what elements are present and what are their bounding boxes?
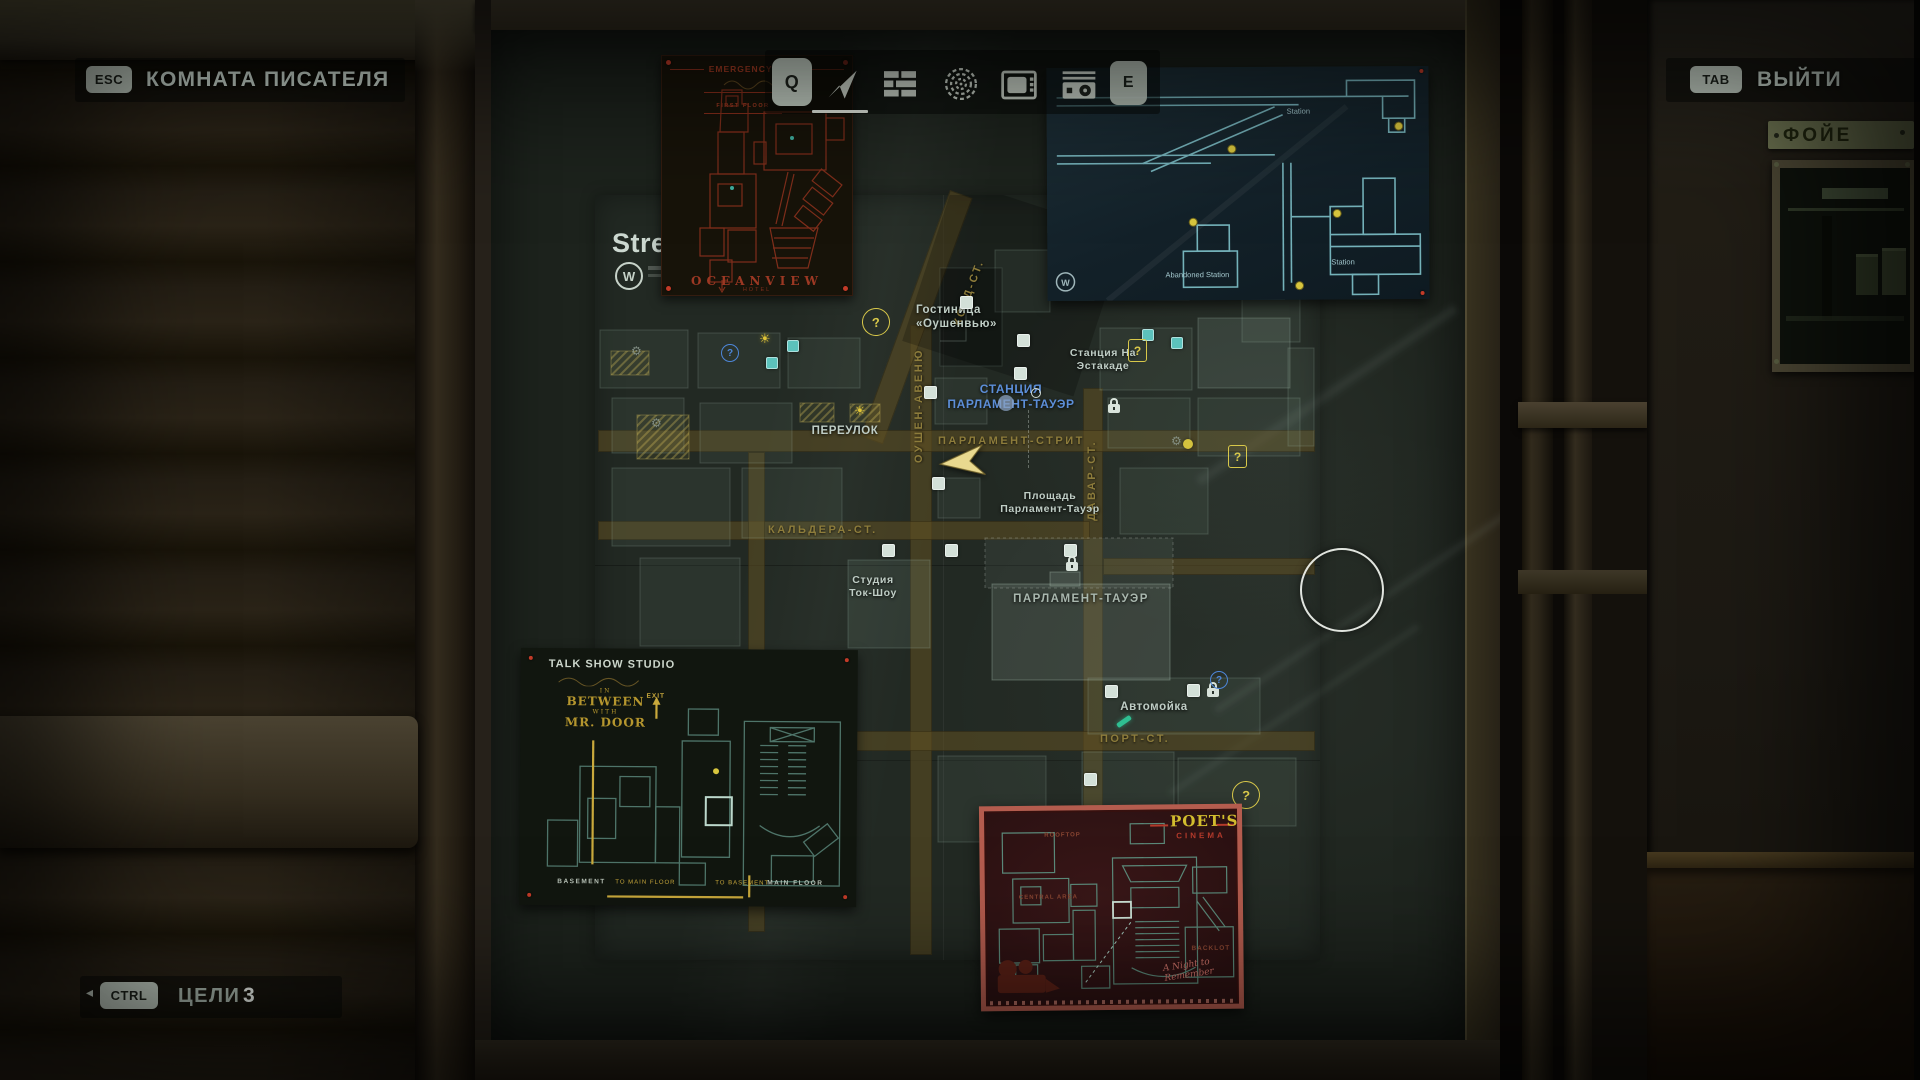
map-board-frame-top xyxy=(475,0,1507,30)
esc-key-badge[interactable]: ESC xyxy=(86,66,132,93)
door-gap xyxy=(1500,0,1522,1080)
door-marker[interactable] xyxy=(945,544,958,557)
lock-icon[interactable] xyxy=(1207,688,1219,697)
street-label-ocean: ОУШЕН-АВЕНЮ xyxy=(913,348,925,463)
subway-station-label: Station xyxy=(1331,257,1354,266)
door-rail xyxy=(1518,402,1648,428)
photo-pillar xyxy=(1822,216,1832,320)
wood-wall-top-beam xyxy=(0,0,440,60)
photo-poster xyxy=(1882,248,1906,295)
screen-right-edge xyxy=(1914,0,1920,1080)
cyan-marker[interactable] xyxy=(766,357,778,369)
screw-icon xyxy=(1774,162,1779,167)
wood-post-left xyxy=(415,0,477,1080)
dashed-path xyxy=(1028,410,1030,468)
lock-icon[interactable] xyxy=(1066,562,1078,571)
photo-frame xyxy=(1772,160,1918,372)
wood-wall-left xyxy=(0,0,475,1080)
exit-label[interactable]: ВЫЙТИ xyxy=(1757,68,1842,92)
foyer-sign-plate: ФОЙЕ xyxy=(1768,121,1914,149)
photo-marquee xyxy=(1822,188,1888,199)
gear-icon: ⚙ xyxy=(1171,435,1182,447)
toolbar-next-key-badge[interactable]: E xyxy=(1110,61,1147,105)
photo-floor xyxy=(1786,316,1904,321)
cyan-marker[interactable] xyxy=(787,340,799,352)
door-marker[interactable] xyxy=(960,296,973,309)
subway-logo: W xyxy=(1061,278,1070,288)
screw-icon xyxy=(1905,162,1910,167)
oceanview-name-sub: HOTEL xyxy=(662,287,852,293)
door-marker[interactable] xyxy=(1187,684,1200,697)
talkshow-floor-main: MAIN FLOOR xyxy=(767,880,823,887)
grid-icon[interactable] xyxy=(882,68,918,100)
street-label-caldera: КАЛЬДЕРА-СТ. xyxy=(768,524,878,536)
talkshow-floor-tomain: TO MAIN FLOOR xyxy=(615,879,675,885)
place-label-talk-show-studio: Студия Ток-Шоу xyxy=(836,574,910,600)
place-label-alley: ПЕРЕУЛОК xyxy=(795,424,895,438)
game-screen: Stre W xyxy=(0,0,1920,1080)
screw-icon xyxy=(1774,359,1779,364)
yellow-dot-marker[interactable] xyxy=(1183,439,1193,449)
poets-subtitle: CINEMA xyxy=(1176,831,1226,841)
break-room-icon[interactable]: ☀ xyxy=(759,332,771,345)
cursor-ring xyxy=(1300,548,1384,632)
question-marker-box[interactable]: ? xyxy=(1128,339,1147,362)
toolbar-prev-key-badge[interactable]: Q xyxy=(772,58,812,106)
door-marker[interactable] xyxy=(1014,367,1027,380)
objectives-count: 3 xyxy=(243,984,255,1008)
place-label-tower-square: Площадь Парламент-Тауэр xyxy=(975,490,1125,516)
spiral-icon[interactable] xyxy=(943,66,979,102)
door-rail xyxy=(1518,570,1648,594)
talkshow-floor-basement: BASEMENT xyxy=(557,878,606,885)
wood-post-left-cap xyxy=(415,0,477,72)
sideboard-body xyxy=(1647,868,1920,1080)
cyan-marker[interactable] xyxy=(1171,337,1183,349)
poets-label-rooftop: ROOFTOP xyxy=(1044,832,1081,838)
lock-icon[interactable] xyxy=(1108,404,1120,413)
question-marker-box[interactable]: ? xyxy=(1228,445,1247,468)
place-label-parliament-tower: ПАРЛАМЕНТ-ТАУЭР xyxy=(992,592,1170,606)
photo-canopy xyxy=(1788,208,1904,211)
door-post xyxy=(1564,0,1592,1080)
subway-station-label: Station xyxy=(1287,107,1310,116)
place-label-hotel: Гостиница «Оушенвью» xyxy=(916,303,1032,332)
tv-icon[interactable] xyxy=(999,68,1039,102)
talkshow-floor-tobasement: TO BASEMENT xyxy=(715,880,769,886)
question-marker-blue[interactable]: ? xyxy=(1210,671,1228,689)
oceanview-name: OCEANVIEW xyxy=(662,274,852,288)
gear-icon: ⚙ xyxy=(651,417,662,429)
map-board-frame-bottom xyxy=(475,1040,1507,1080)
poets-label-central: CENTRAL AREA xyxy=(1019,894,1078,901)
screw-icon xyxy=(1774,133,1779,138)
break-room-icon[interactable]: ☀ xyxy=(854,404,866,417)
metro-icon xyxy=(1031,388,1041,398)
sideboard-top xyxy=(1647,852,1920,868)
poets-label-backlot: BACKLOT xyxy=(1191,945,1230,952)
nav-arrow-icon[interactable] xyxy=(824,66,860,102)
station-entrance-dot xyxy=(998,395,1014,411)
gear-icon: ⚙ xyxy=(631,345,642,357)
poets-title: POET'S xyxy=(1170,812,1239,831)
door-post xyxy=(1522,0,1553,1080)
talkshow-floorplan xyxy=(519,648,858,907)
page-title: КОМНАТА ПИСАТЕЛЯ xyxy=(146,68,389,92)
door-marker[interactable] xyxy=(1017,334,1030,347)
foyer-sign-label: ФОЙЕ xyxy=(1783,125,1852,147)
subway-station-label: Abandoned Station xyxy=(1165,270,1229,279)
submap-poets-cinema[interactable]: POET'S CINEMA ROOFTOP CENTRAL AREA BACKL… xyxy=(979,804,1244,1012)
street-label-port: ПОРТ-СТ. xyxy=(1100,733,1170,745)
ctrl-key-badge[interactable]: CTRL xyxy=(100,982,158,1009)
door-marker[interactable] xyxy=(882,544,895,557)
wood-log xyxy=(0,716,418,848)
door-marker[interactable] xyxy=(1084,773,1097,786)
radio-icon[interactable] xyxy=(1059,68,1099,102)
question-marker-blue[interactable]: ? xyxy=(721,344,739,362)
door-marker[interactable] xyxy=(1105,685,1118,698)
objectives-collapse-arrow[interactable]: ◂ xyxy=(86,985,93,999)
active-tab-underline xyxy=(812,110,868,113)
map-board-frame-left xyxy=(475,0,491,1080)
photo-poster xyxy=(1856,254,1878,295)
door-marker[interactable] xyxy=(924,386,937,399)
objectives-label[interactable]: ЦЕЛИ xyxy=(178,985,240,1008)
submap-talk-show-studio[interactable]: TALK SHOW STUDIO IN BETWEEN WITH MR. DOO… xyxy=(519,648,858,907)
place-label-car-wash: Автомойка xyxy=(1108,700,1200,714)
player-marker-arrow xyxy=(934,441,987,482)
tab-key-badge[interactable]: TAB xyxy=(1690,66,1742,93)
screw-icon xyxy=(1900,130,1905,135)
